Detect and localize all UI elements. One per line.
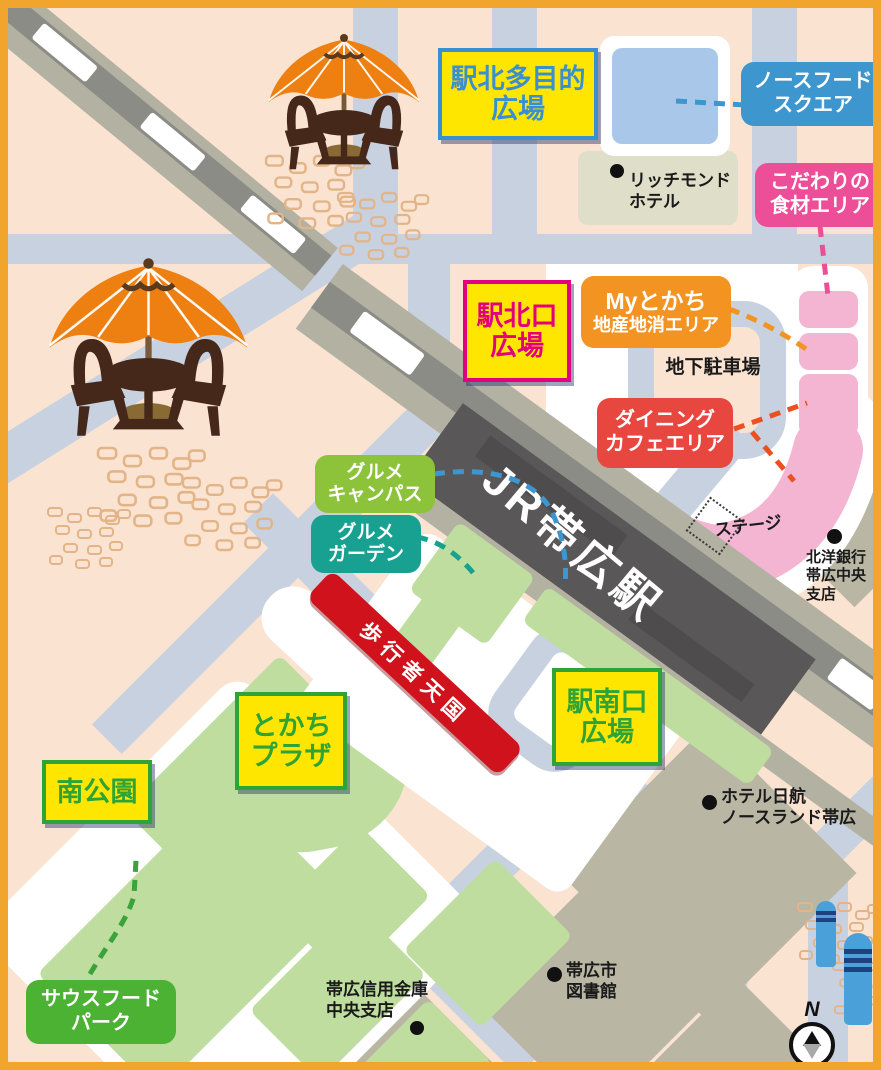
label-ekiminamiguchi-hiroba: 駅南口 広場 [552, 668, 662, 766]
label-tokachi-plaza: とかち プラザ [235, 692, 347, 790]
hotel-nikko-dot [702, 795, 717, 810]
stall-block-3 [799, 374, 858, 436]
label-ekikita-tamokuteki-hiroba: 駅北多目的 広場 [438, 48, 598, 140]
label-south-food-park: サウスフード パーク [26, 980, 176, 1044]
event-area-map: JR帯広駅 ステージ 歩行者天国 [0, 0, 881, 1070]
obihiro-shinkin-dot [410, 1021, 424, 1035]
label-obihiro-library: 帯広市 図書館 [566, 961, 617, 1002]
label-kodawari-shokuzai-area: こだわりの 食材エリア [755, 163, 881, 227]
label-gourmet-campus: グルメ キャンパス [315, 455, 435, 513]
label-gourmet-garden: グルメ ガーデン [311, 515, 421, 573]
label-north-food-square: ノースフード スクエア [741, 62, 881, 126]
library-dot [547, 967, 562, 982]
compass-icon: N [786, 998, 838, 1070]
richmond-hotel-dot [610, 164, 624, 178]
bollard-icon [816, 901, 836, 967]
label-my-tokachi-area: Myとかち 地産地消エリア [581, 276, 731, 348]
label-obihiro-shinkin: 帯広信用金庫 中央支店 [326, 980, 428, 1021]
bollard-icon [844, 933, 872, 1025]
label-richmond-hotel: リッチモンド ホテル [629, 171, 731, 212]
stall-block-2 [799, 333, 858, 370]
label-ekikitaguchi-hiroba: 駅北口 広場 [463, 280, 571, 382]
compass-north-letter: N [786, 998, 838, 1022]
label-minami-koen: 南公園 [42, 760, 152, 824]
label-dining-cafe-area: ダイニング カフェエリア [597, 398, 733, 468]
stall-block-1 [799, 291, 858, 328]
north-food-square-area [612, 48, 718, 144]
label-hokuyo-bank: 北洋銀行 帯広中央 支店 [806, 549, 866, 604]
hokuyo-bank-dot [827, 529, 842, 544]
label-hotel-nikko: ホテル日航 ノースランド帯広 [721, 787, 856, 828]
label-underground-parking: 地下駐車場 [648, 356, 778, 379]
